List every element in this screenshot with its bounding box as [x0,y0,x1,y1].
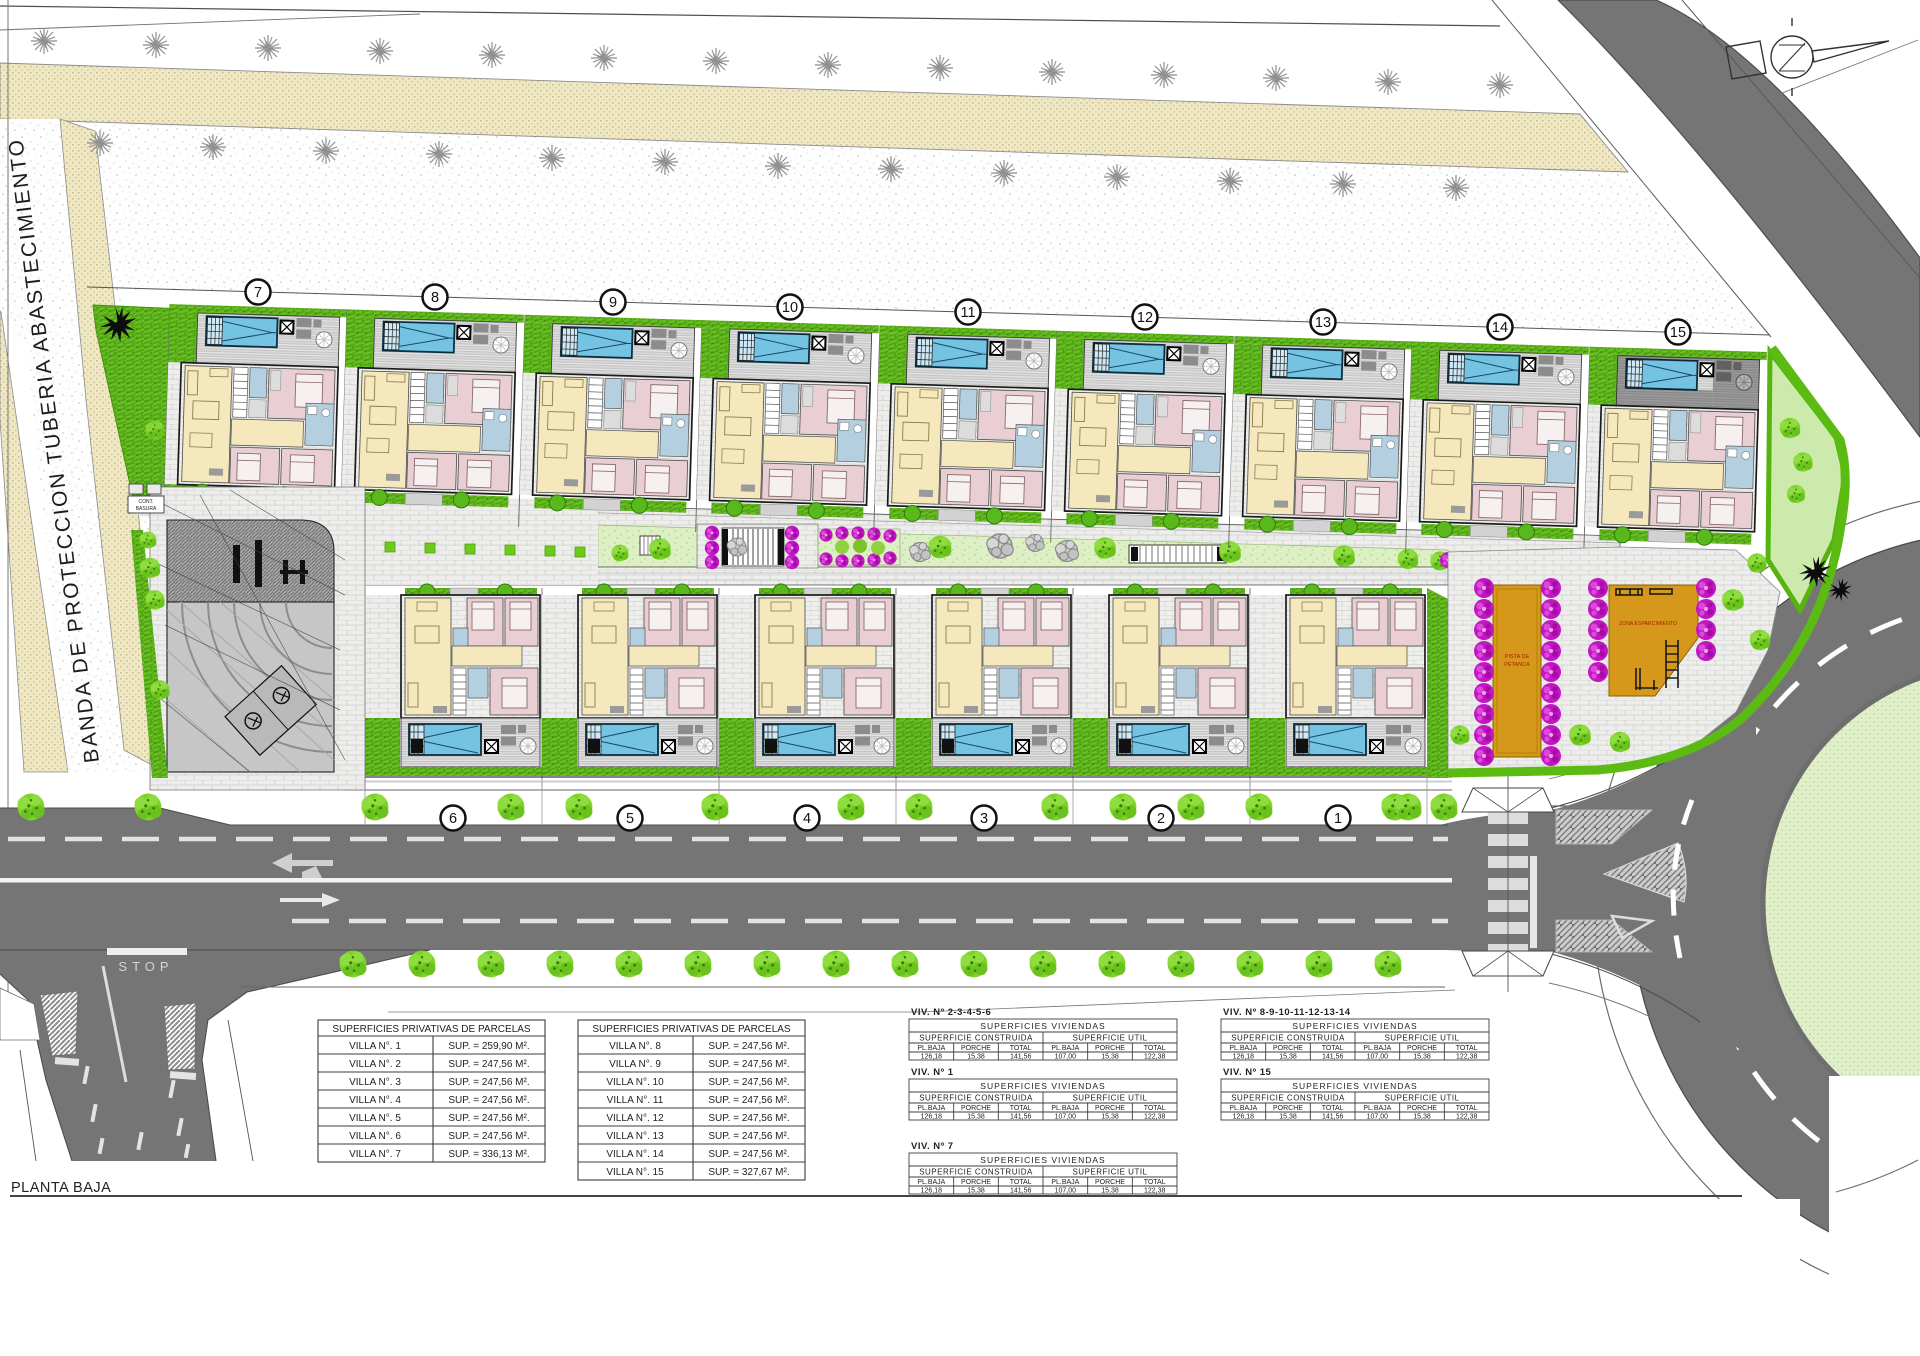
svg-text:8: 8 [431,290,439,306]
svg-text:107,00: 107,00 [1367,1114,1389,1121]
svg-text:PORCHE: PORCHE [961,1045,991,1052]
svg-text:VILLA N°. 3: VILLA N°. 3 [349,1077,401,1088]
svg-text:TOTAL: TOTAL [1322,1045,1344,1052]
svg-text:SUP. = 247,56 M².: SUP. = 247,56 M². [708,1041,789,1052]
svg-text:STOP: STOP [118,959,173,974]
svg-text:SUPERFICIE CONSTRUIDA: SUPERFICIE CONSTRUIDA [919,1034,1033,1043]
svg-text:ZONA ESPARCIMIENTO: ZONA ESPARCIMIENTO [1619,621,1677,627]
svg-text:TOTAL: TOTAL [1010,1179,1032,1186]
svg-text:PL.BAJA: PL.BAJA [1229,1105,1257,1112]
svg-text:12: 12 [1137,310,1153,326]
svg-text:VIV. Nº 1: VIV. Nº 1 [911,1067,954,1078]
svg-text:SUP. = 247,56 M².: SUP. = 247,56 M². [708,1131,789,1142]
svg-text:SUPERFICIES VIVIENDAS: SUPERFICIES VIVIENDAS [980,1155,1105,1165]
svg-text:SUPERFICIE CONSTRUIDA: SUPERFICIE CONSTRUIDA [1231,1094,1345,1103]
svg-text:SUPERFICIES VIVIENDAS: SUPERFICIES VIVIENDAS [1292,1021,1417,1031]
svg-text:PL.BAJA: PL.BAJA [1363,1045,1391,1052]
svg-text:SUPERFICIES VIVIENDAS: SUPERFICIES VIVIENDAS [980,1081,1105,1091]
svg-text:VILLA N°. 5: VILLA N°. 5 [349,1113,401,1124]
svg-text:122,38: 122,38 [1456,1114,1478,1121]
svg-text:VILLA N°. 9: VILLA N°. 9 [609,1059,661,1070]
svg-text:PORCHE: PORCHE [1407,1045,1437,1052]
svg-text:VILLA N°. 4: VILLA N°. 4 [349,1095,401,1106]
svg-text:126,18: 126,18 [921,1114,943,1121]
svg-text:TOTAL: TOTAL [1322,1105,1344,1112]
svg-text:PL.BAJA: PL.BAJA [1051,1045,1079,1052]
svg-text:15,38: 15,38 [1101,1054,1119,1061]
svg-text:11: 11 [960,305,975,321]
svg-text:SUP. = 327,67 M².: SUP. = 327,67 M². [708,1167,789,1178]
svg-text:126,18: 126,18 [921,1188,943,1195]
svg-text:TOTAL: TOTAL [1144,1045,1166,1052]
svg-text:15,38: 15,38 [967,1188,985,1195]
svg-text:122,38: 122,38 [1144,1114,1166,1121]
svg-text:VILLA N°. 15: VILLA N°. 15 [606,1167,664,1178]
svg-text:SUPERFICIES PRIVATIVAS DE PARC: SUPERFICIES PRIVATIVAS DE PARCELAS [332,1024,531,1035]
svg-text:7: 7 [254,285,262,301]
svg-text:SUP. = 336,13 M².: SUP. = 336,13 M². [448,1149,529,1160]
svg-text:15,38: 15,38 [1101,1188,1119,1195]
svg-text:SUP. = 247,56 M².: SUP. = 247,56 M². [708,1113,789,1124]
svg-text:VILLA N°. 10: VILLA N°. 10 [606,1077,664,1088]
svg-text:SUPERFICIES VIVIENDAS: SUPERFICIES VIVIENDAS [980,1021,1105,1031]
svg-text:SUPERFICIE UTIL: SUPERFICIE UTIL [1072,1094,1147,1103]
svg-text:15,38: 15,38 [1279,1054,1297,1061]
svg-text:PL.BAJA: PL.BAJA [1051,1105,1079,1112]
svg-text:14: 14 [1492,320,1508,336]
svg-text:PISTA DE: PISTA DE [1505,654,1530,660]
svg-text:TOTAL: TOTAL [1456,1105,1478,1112]
svg-text:PL.BAJA: PL.BAJA [1363,1105,1391,1112]
svg-text:1: 1 [1334,811,1342,827]
svg-text:126,18: 126,18 [1233,1054,1255,1061]
svg-text:122,38: 122,38 [1144,1054,1166,1061]
svg-text:13: 13 [1315,315,1331,331]
svg-text:PORCHE: PORCHE [961,1105,991,1112]
svg-text:PL.BAJA: PL.BAJA [917,1179,945,1186]
svg-text:VILLA N°. 13: VILLA N°. 13 [606,1131,664,1142]
svg-text:PORCHE: PORCHE [1273,1045,1303,1052]
svg-text:VILLA N°. 6: VILLA N°. 6 [349,1131,401,1142]
svg-text:126,18: 126,18 [1233,1114,1255,1121]
svg-text:SUPERFICIE UTIL: SUPERFICIE UTIL [1072,1034,1147,1043]
svg-text:15,38: 15,38 [967,1054,985,1061]
svg-text:6: 6 [449,811,457,827]
svg-text:TOTAL: TOTAL [1144,1179,1166,1186]
svg-text:PORCHE: PORCHE [1407,1105,1437,1112]
svg-text:SUP. = 247,56 M².: SUP. = 247,56 M². [448,1059,529,1070]
svg-text:5: 5 [626,811,634,827]
svg-text:BASURA: BASURA [136,506,157,512]
svg-text:PORCHE: PORCHE [1095,1179,1125,1186]
svg-text:PORCHE: PORCHE [1095,1105,1125,1112]
svg-text:141,56: 141,56 [1010,1054,1032,1061]
svg-text:VILLA N°. 8: VILLA N°. 8 [609,1041,661,1052]
svg-text:PL.BAJA: PL.BAJA [1229,1045,1257,1052]
svg-text:PL.BAJA: PL.BAJA [1051,1179,1079,1186]
svg-text:15,38: 15,38 [1279,1114,1297,1121]
svg-text:TOTAL: TOTAL [1010,1045,1032,1052]
svg-text:122,38: 122,38 [1456,1054,1478,1061]
svg-text:141,56: 141,56 [1322,1114,1344,1121]
svg-text:10: 10 [782,300,798,316]
svg-text:15,38: 15,38 [1413,1054,1431,1061]
svg-text:4: 4 [803,811,811,827]
svg-text:PETANCA: PETANCA [1504,662,1530,668]
svg-text:SUPERFICIES VIVIENDAS: SUPERFICIES VIVIENDAS [1292,1081,1417,1091]
svg-text:126,18: 126,18 [921,1054,943,1061]
svg-text:SUPERFICIE UTIL: SUPERFICIE UTIL [1384,1094,1459,1103]
svg-text:PORCHE: PORCHE [1095,1045,1125,1052]
svg-text:2: 2 [1157,811,1165,827]
svg-text:SUP. = 259,90 M².: SUP. = 259,90 M². [448,1041,529,1052]
svg-text:15,38: 15,38 [1101,1114,1119,1121]
svg-text:SUPERFICIE UTIL: SUPERFICIE UTIL [1384,1034,1459,1043]
svg-text:SUP. = 247,56 M².: SUP. = 247,56 M². [708,1077,789,1088]
svg-text:107,00: 107,00 [1055,1114,1077,1121]
svg-text:SUPERFICIES PRIVATIVAS DE PARC: SUPERFICIES PRIVATIVAS DE PARCELAS [592,1024,791,1035]
svg-text:3: 3 [980,811,988,827]
svg-text:VILLA N°. 7: VILLA N°. 7 [349,1149,401,1160]
svg-text:PORCHE: PORCHE [961,1179,991,1186]
svg-text:SUP. = 247,56 M².: SUP. = 247,56 M². [448,1131,529,1142]
svg-text:SUPERFICIE UTIL: SUPERFICIE UTIL [1072,1168,1147,1177]
svg-text:VILLA N°. 14: VILLA N°. 14 [606,1149,664,1160]
svg-text:VILLA N°. 1: VILLA N°. 1 [349,1041,401,1052]
svg-text:PORCHE: PORCHE [1273,1105,1303,1112]
svg-text:PL.BAJA: PL.BAJA [917,1045,945,1052]
svg-text:TOTAL: TOTAL [1456,1045,1478,1052]
svg-text:VIV. Nº 2-3-4-5-6: VIV. Nº 2-3-4-5-6 [911,1007,991,1018]
svg-text:PL.BAJA: PL.BAJA [917,1105,945,1112]
svg-text:VIV. Nº 15: VIV. Nº 15 [1223,1067,1271,1078]
svg-text:TOTAL: TOTAL [1010,1105,1032,1112]
svg-text:VILLA N°. 12: VILLA N°. 12 [606,1113,664,1124]
svg-text:VIV. Nº 7: VIV. Nº 7 [911,1141,953,1152]
svg-text:15: 15 [1670,325,1686,341]
svg-text:SUPERFICIE CONSTRUIDA: SUPERFICIE CONSTRUIDA [1231,1034,1345,1043]
svg-text:SUPERFICIE CONSTRUIDA: SUPERFICIE CONSTRUIDA [919,1094,1033,1103]
svg-text:PLANTA BAJA: PLANTA BAJA [11,1180,111,1196]
svg-text:SUP. = 247,56 M².: SUP. = 247,56 M². [708,1059,789,1070]
svg-text:SUP. = 247,56 M².: SUP. = 247,56 M². [708,1149,789,1160]
svg-text:SUPERFICIE CONSTRUIDA: SUPERFICIE CONSTRUIDA [919,1168,1033,1177]
svg-text:141,56: 141,56 [1322,1054,1344,1061]
svg-text:141,56: 141,56 [1010,1188,1032,1195]
svg-text:9: 9 [609,295,617,311]
svg-text:141,56: 141,56 [1010,1114,1032,1121]
svg-text:15,38: 15,38 [1413,1114,1431,1121]
svg-text:SUP. = 247,56 M².: SUP. = 247,56 M². [448,1077,529,1088]
svg-text:107,00: 107,00 [1367,1054,1389,1061]
svg-text:VILLA N°. 11: VILLA N°. 11 [607,1095,664,1106]
svg-text:107,00: 107,00 [1055,1188,1077,1195]
svg-text:VILLA N°. 2: VILLA N°. 2 [349,1059,401,1070]
svg-text:CONT.: CONT. [139,499,154,505]
svg-text:VIV. Nº 8-9-10-11-12-13-14: VIV. Nº 8-9-10-11-12-13-14 [1223,1007,1351,1018]
svg-text:SUP. = 247,56 M².: SUP. = 247,56 M². [708,1095,789,1106]
svg-text:15,38: 15,38 [967,1114,985,1121]
svg-text:SUP. = 247,56 M².: SUP. = 247,56 M². [448,1113,529,1124]
svg-text:107,00: 107,00 [1055,1054,1077,1061]
svg-text:TOTAL: TOTAL [1144,1105,1166,1112]
svg-text:SUP. = 247,56 M².: SUP. = 247,56 M². [448,1095,529,1106]
svg-text:122,38: 122,38 [1144,1188,1166,1195]
